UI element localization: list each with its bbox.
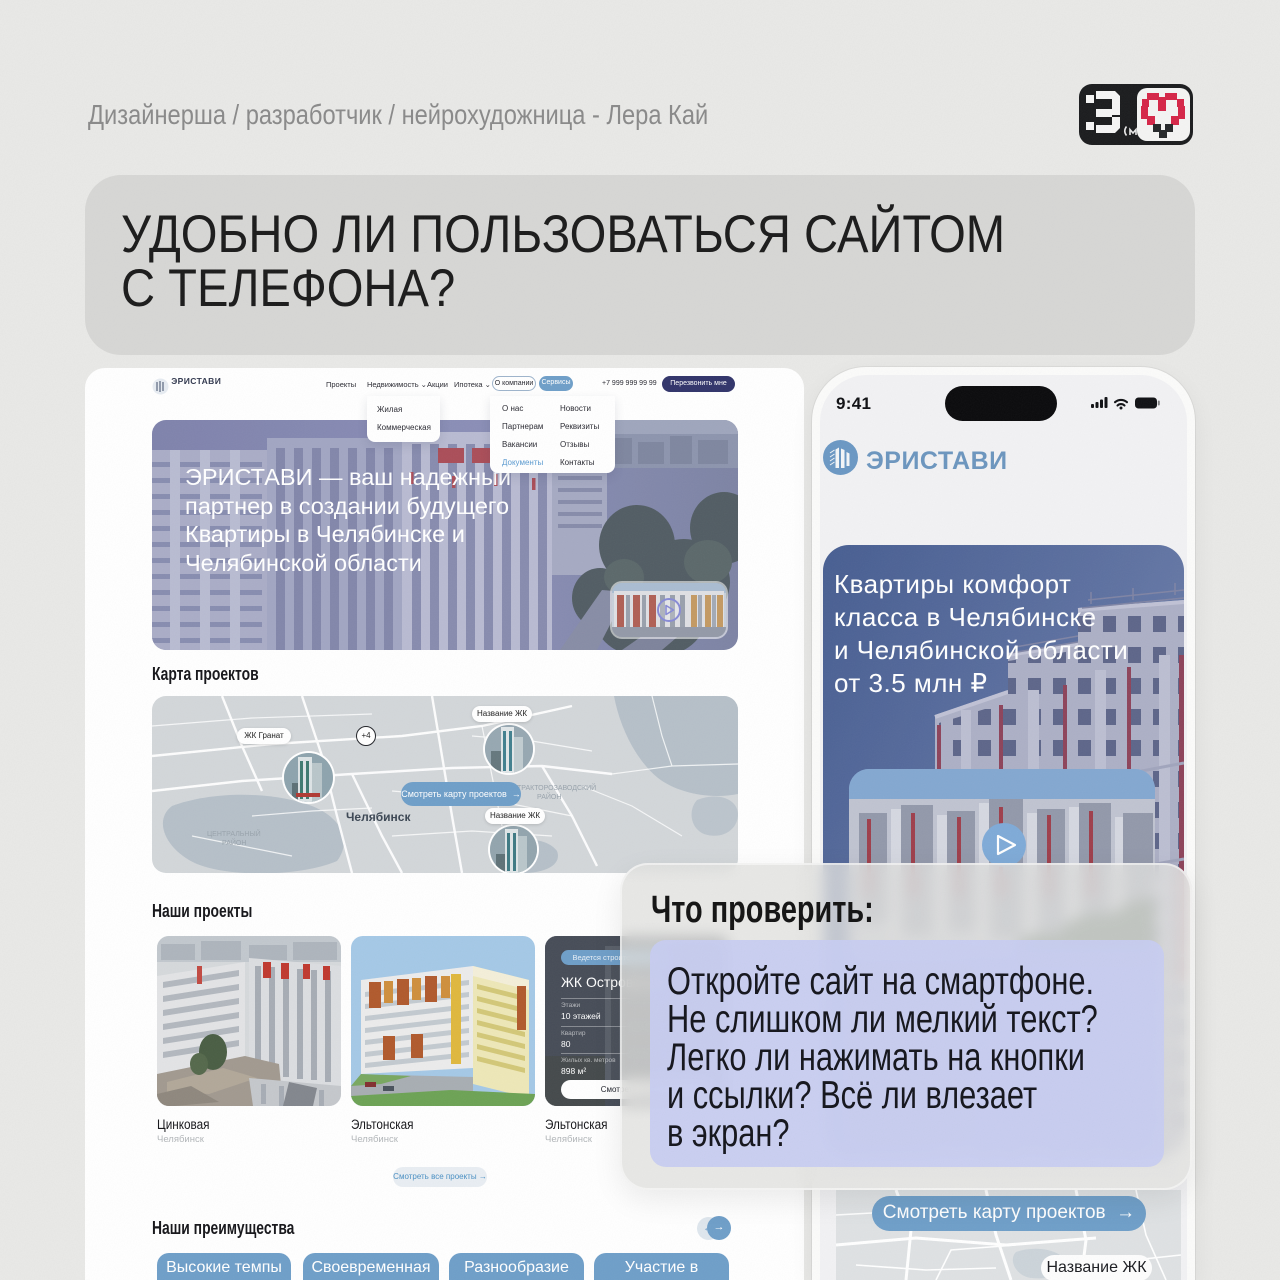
svg-text:ТРАКТОРОЗАВОДСКИЙ: ТРАКТОРОЗАВОДСКИЙ bbox=[517, 783, 596, 792]
svg-text:Челябинск: Челябинск bbox=[346, 810, 411, 824]
svg-text:ЦЕНТРАЛЬНЫЙ: ЦЕНТРАЛЬНЫЙ bbox=[207, 829, 261, 838]
svg-text:РАЙОН: РАЙОН bbox=[222, 838, 246, 847]
svg-text:РАЙОН: РАЙОН bbox=[537, 792, 561, 801]
